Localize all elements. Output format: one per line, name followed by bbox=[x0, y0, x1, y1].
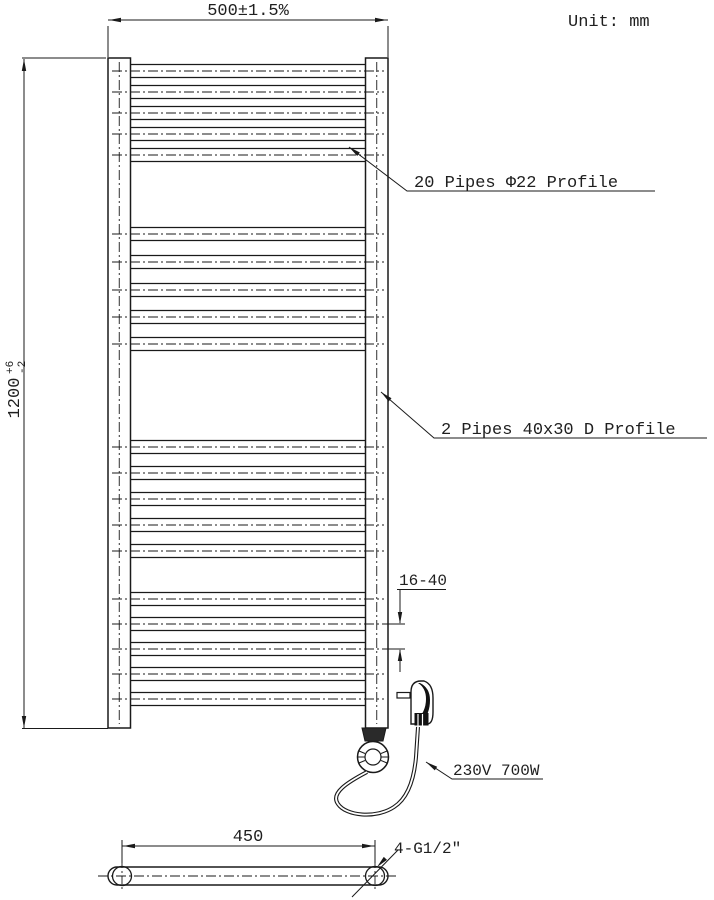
thermostat-knob-inner bbox=[365, 749, 381, 765]
width-dimension-label: 500±1.5% bbox=[207, 2, 289, 21]
dimension-width bbox=[108, 18, 388, 57]
svg-text:+6: +6 bbox=[5, 361, 17, 374]
arrowhead bbox=[362, 844, 374, 848]
dimension-height bbox=[22, 58, 108, 729]
height-dimension-label: 1200 +6 -2 bbox=[5, 361, 29, 419]
arrowhead bbox=[22, 59, 26, 71]
thread-label: 4-G1/2″ bbox=[394, 840, 461, 858]
arrowhead bbox=[22, 716, 26, 728]
technical-drawing-page: 500±1.5% 1200 +6 -2 Unit: mm 20 Pipes Φ2… bbox=[0, 0, 714, 900]
radiator-plan-view bbox=[98, 860, 398, 892]
pipes-annotation-label: 20 Pipes Φ22 Profile bbox=[414, 174, 618, 193]
towel-radiator-drawing: 500±1.5% 1200 +6 -2 Unit: mm 20 Pipes Φ2… bbox=[0, 0, 714, 900]
arrowhead bbox=[398, 612, 402, 624]
svg-text:1200: 1200 bbox=[6, 378, 25, 419]
arrowhead bbox=[426, 762, 437, 770]
arrowhead bbox=[377, 857, 387, 867]
unit-label: Unit: mm bbox=[568, 13, 650, 32]
element-fitting bbox=[362, 728, 386, 741]
dimension-pipe-spacing bbox=[384, 590, 446, 673]
heating-element bbox=[358, 728, 389, 773]
arrowhead bbox=[398, 649, 402, 661]
power-plug bbox=[397, 681, 433, 726]
profile-annotation-label: 2 Pipes 40x30 D Profile bbox=[441, 421, 676, 440]
pipe-spacing-label: 16-40 bbox=[399, 572, 447, 590]
bottom-width-label: 450 bbox=[233, 828, 264, 847]
plug-boot bbox=[415, 713, 429, 726]
power-annotation-label: 230V 700W bbox=[453, 762, 540, 780]
radiator-front-view bbox=[108, 58, 388, 728]
plug-prong bbox=[397, 693, 410, 699]
pipes-layer bbox=[112, 65, 384, 706]
arrowhead bbox=[375, 18, 387, 22]
svg-text:-2: -2 bbox=[17, 361, 29, 374]
arrowhead bbox=[123, 844, 135, 848]
arrowhead bbox=[109, 18, 121, 22]
